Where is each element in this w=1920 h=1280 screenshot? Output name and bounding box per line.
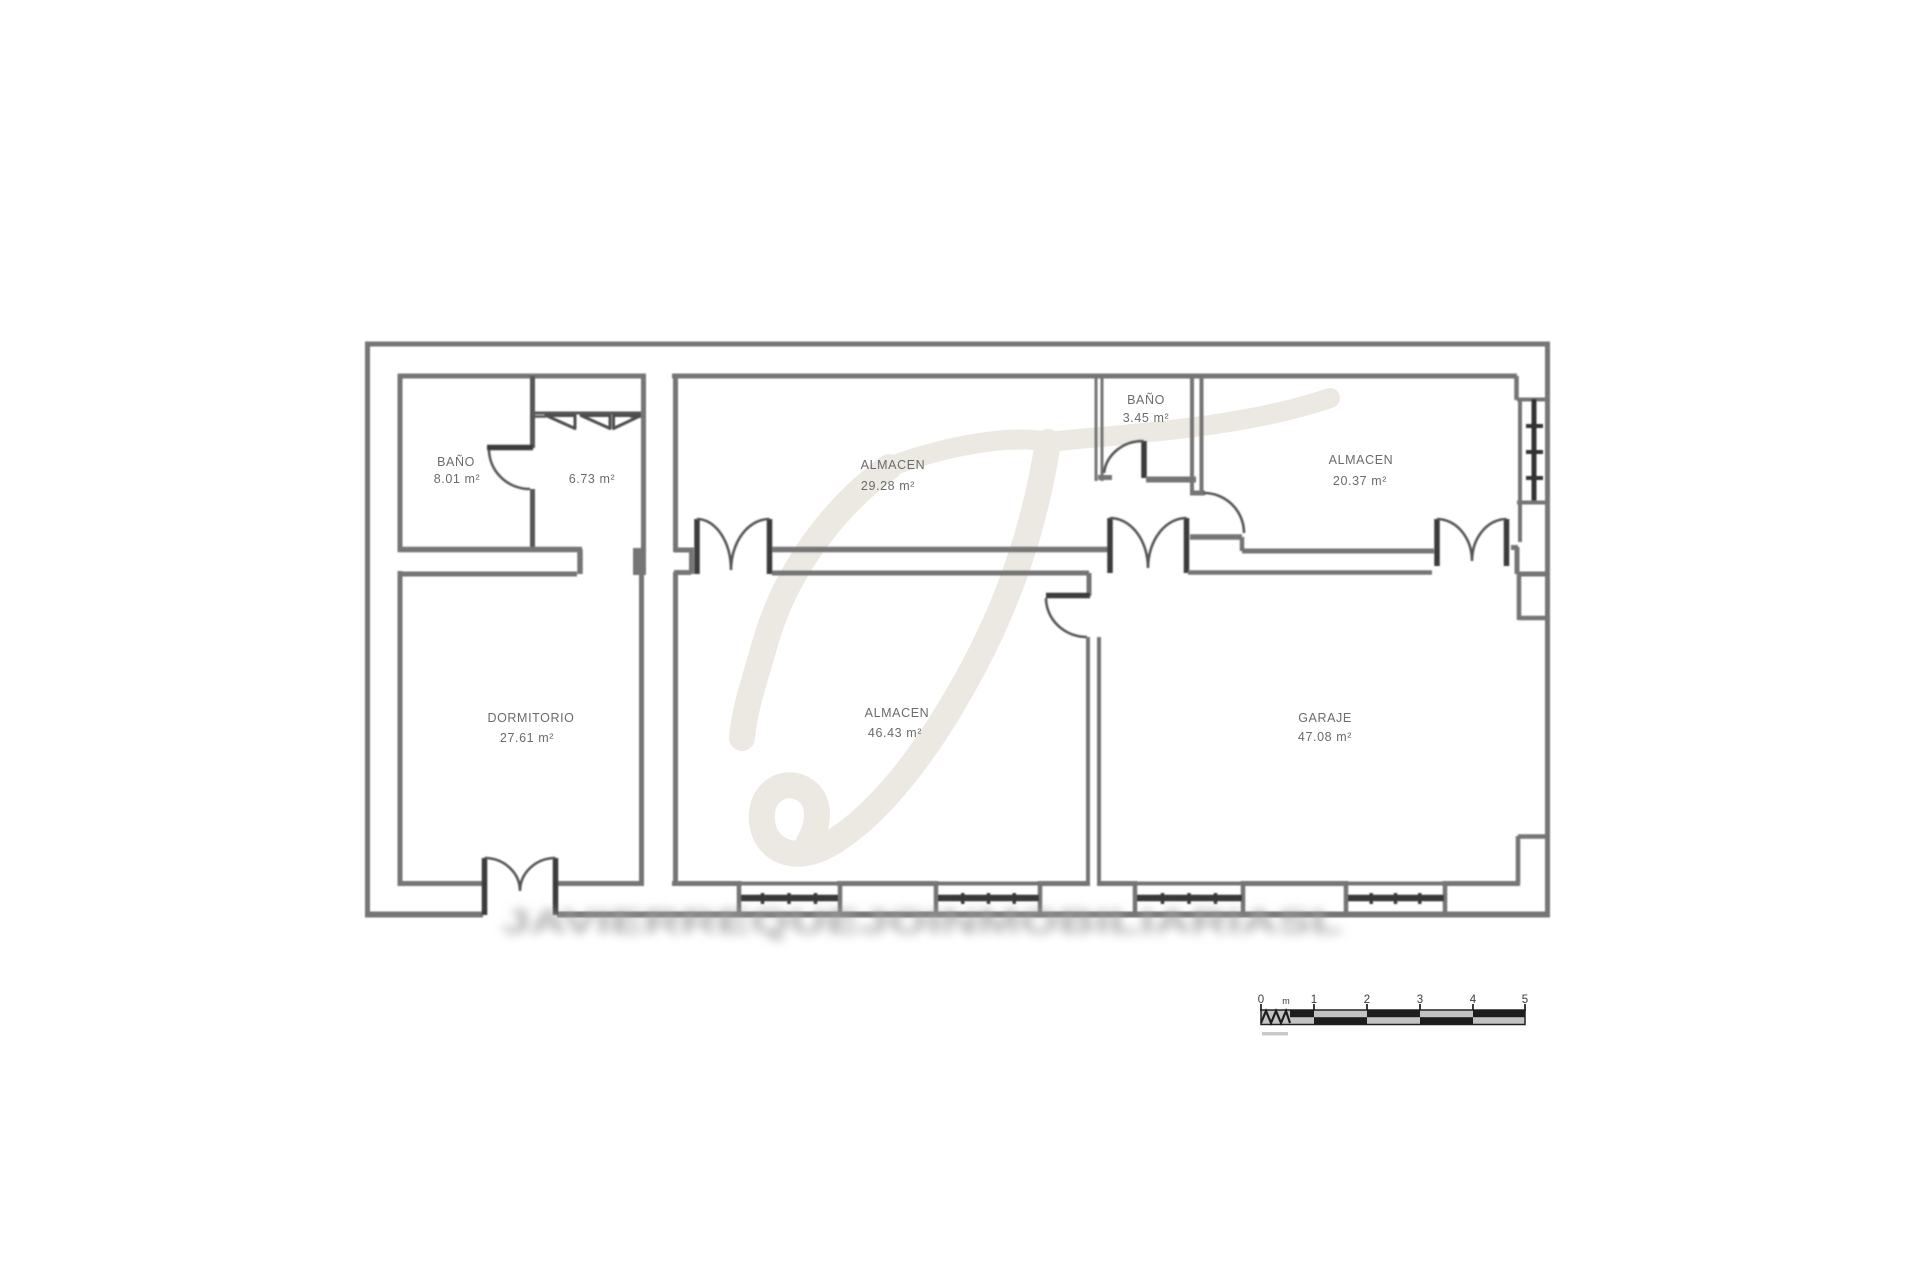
svg-text:DORMITORIO: DORMITORIO — [487, 711, 574, 725]
svg-text:ALMACEN: ALMACEN — [865, 706, 930, 720]
svg-text:6.73 m²: 6.73 m² — [569, 472, 616, 486]
svg-text:BAÑO: BAÑO — [437, 455, 475, 469]
svg-text:46.43 m²: 46.43 m² — [868, 726, 922, 740]
svg-text:20.37 m²: 20.37 m² — [1333, 474, 1387, 488]
svg-text:m: m — [1282, 996, 1290, 1006]
svg-text:GARAJE: GARAJE — [1298, 711, 1352, 725]
svg-text:ALMACEN: ALMACEN — [1329, 453, 1394, 467]
svg-text:27.61 m²: 27.61 m² — [500, 731, 554, 745]
svg-text:29.28 m²: 29.28 m² — [861, 479, 915, 493]
svg-text:JAVIERREQUEJOINMOBILIARIASL: JAVIERREQUEJOINMOBILIARIASL — [502, 903, 1342, 940]
svg-text:BAÑO: BAÑO — [1127, 393, 1165, 407]
svg-text:8.01 m²: 8.01 m² — [434, 472, 481, 486]
svg-text:3.45 m²: 3.45 m² — [1123, 411, 1170, 425]
svg-text:47.08 m²: 47.08 m² — [1298, 730, 1352, 744]
svg-text:ALMACEN: ALMACEN — [861, 458, 926, 472]
